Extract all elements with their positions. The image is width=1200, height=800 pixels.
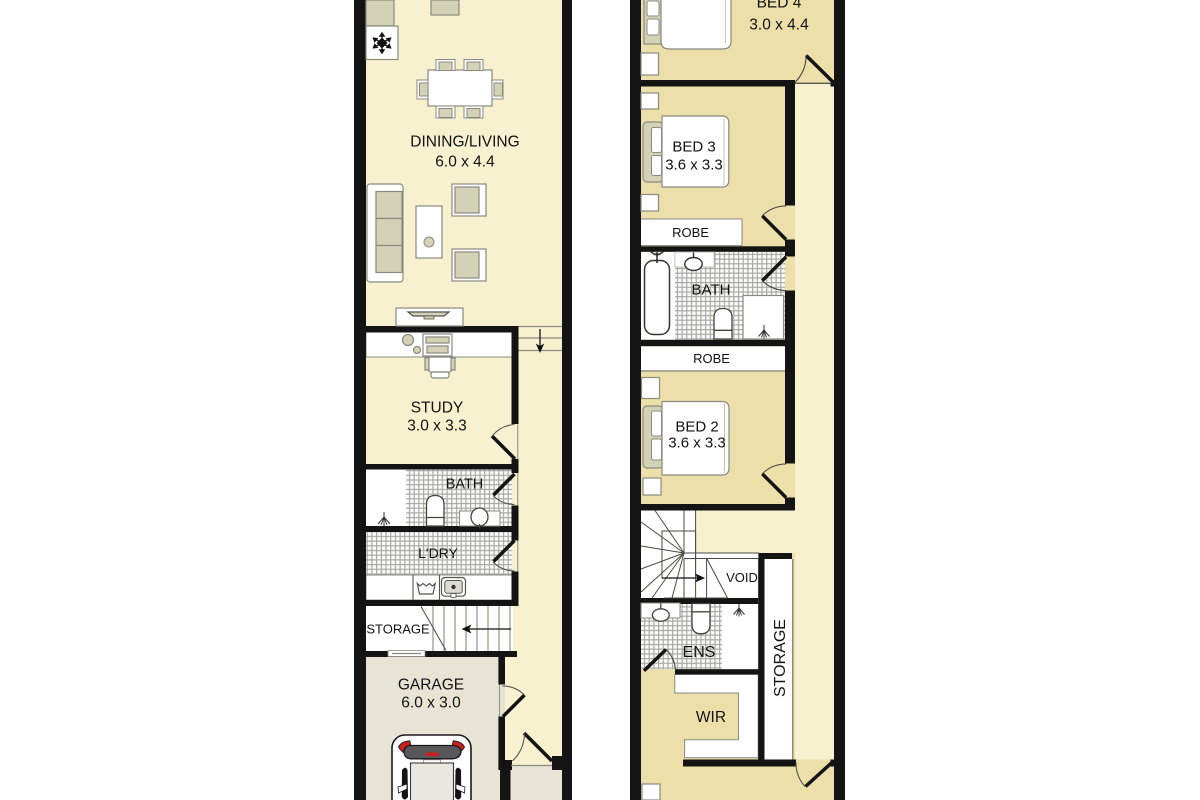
svg-text:VOID: VOID xyxy=(726,570,758,585)
svg-text:3.6 x 3.3: 3.6 x 3.3 xyxy=(665,157,723,174)
svg-text:GARAGE: GARAGE xyxy=(398,677,464,694)
svg-text:STORAGE: STORAGE xyxy=(366,622,430,637)
svg-text:STORAGE: STORAGE xyxy=(772,619,789,697)
svg-text:WIR: WIR xyxy=(696,709,726,726)
svg-text:BED 4: BED 4 xyxy=(757,0,802,12)
svg-text:ROBE: ROBE xyxy=(693,351,730,366)
svg-text:3.0 x 3.3: 3.0 x 3.3 xyxy=(407,418,466,435)
svg-text:6.0 x 3.0: 6.0 x 3.0 xyxy=(401,695,461,712)
svg-text:BED 3: BED 3 xyxy=(672,139,715,156)
svg-text:6.0 x 4.4: 6.0 x 4.4 xyxy=(435,154,495,171)
svg-text:ENS: ENS xyxy=(683,644,716,661)
svg-text:STUDY: STUDY xyxy=(411,400,464,417)
svg-text:3.6 x 3.3: 3.6 x 3.3 xyxy=(668,435,726,452)
svg-text:BATH: BATH xyxy=(446,477,484,493)
svg-text:DINING/LIVING: DINING/LIVING xyxy=(410,134,519,151)
svg-text:BED 2: BED 2 xyxy=(675,419,718,436)
svg-text:ROBE: ROBE xyxy=(672,225,709,240)
svg-text:BATH: BATH xyxy=(692,281,731,298)
svg-text:L'DRY: L'DRY xyxy=(418,545,458,561)
svg-text:3.0 x 4.4: 3.0 x 4.4 xyxy=(749,17,809,34)
